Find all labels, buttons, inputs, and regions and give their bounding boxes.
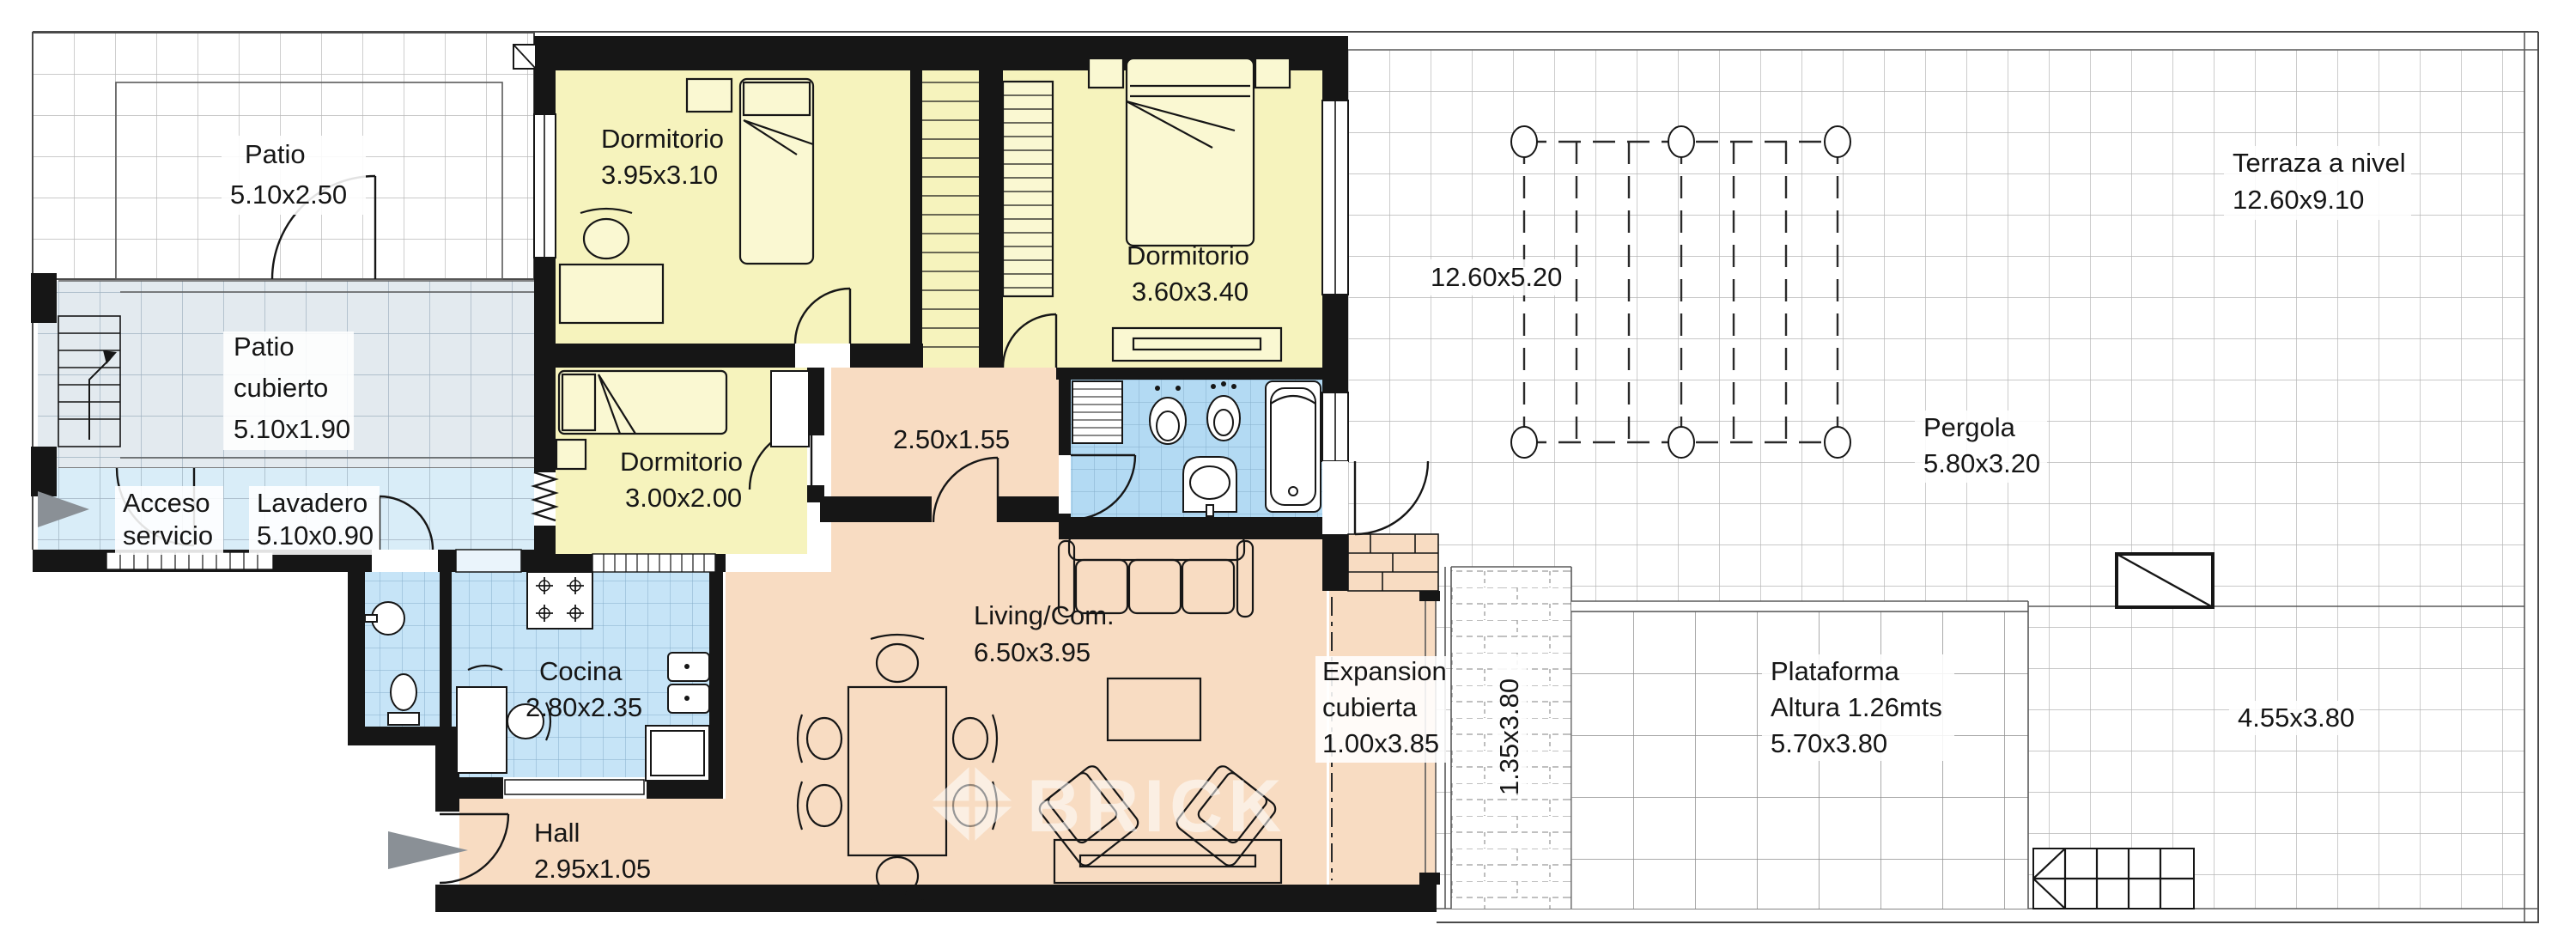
patio-label: Patio	[245, 139, 306, 169]
exterior-door-gap	[1322, 461, 1348, 534]
dormitorio1-dims: 3.95x3.10	[601, 160, 718, 190]
patio-cubierto-dims: 5.10x1.90	[234, 414, 350, 444]
wall-vent-hatch	[106, 552, 715, 572]
plataforma-label2: Altura 1.26mts	[1771, 692, 1942, 722]
zigzag-window-icon	[534, 472, 556, 520]
living-label: Living/Com.	[974, 600, 1115, 630]
terrace-stairs-icon	[2033, 849, 2194, 909]
dormitorio2-label: Dormitorio	[1127, 240, 1249, 271]
pasaje-dims: 1.35x3.80	[1494, 678, 1524, 795]
sink-icon	[1183, 457, 1236, 516]
terraza-dims: 12.60x9.10	[2233, 185, 2364, 215]
dormitorio1-label: Dormitorio	[601, 124, 724, 154]
hall-label: Hall	[534, 818, 580, 848]
pasillo-dims: 2.50x1.55	[893, 424, 1010, 454]
patio-cubierto-label: Patio	[234, 332, 295, 362]
lavadero-label: Lavadero	[257, 488, 368, 518]
patio-dims: 5.10x2.50	[230, 179, 347, 210]
column-icon	[513, 45, 536, 69]
acceso-label: Acceso	[123, 488, 210, 518]
window-icon	[1322, 100, 1348, 295]
pergola-label: Pergola	[1923, 412, 2016, 442]
patio-cubierto-label2: cubierto	[234, 373, 328, 403]
cocina-dims: 2.80x2.35	[526, 692, 642, 722]
watermark-text: BRICK	[1027, 765, 1286, 848]
lavadero-dims: 5.10x0.90	[257, 520, 374, 551]
expansion-dims: 1.00x3.85	[1322, 728, 1439, 758]
plataforma-dims: 5.70x3.80	[1771, 728, 1887, 758]
main-entry-arrow-icon	[388, 831, 468, 869]
living-dims: 6.50x3.95	[974, 637, 1091, 667]
floor-plan-canvas: Patio 5.10x2.50 Patio cubierto 5.10x1.90…	[0, 0, 2576, 949]
expansion-label2: cubierta	[1322, 692, 1418, 722]
window-icon	[534, 114, 556, 258]
wardrobe-icon	[1003, 82, 1053, 296]
floor-plan: Patio 5.10x2.50 Patio cubierto 5.10x1.90…	[0, 0, 2576, 949]
pergola-dims: 5.80x3.20	[1923, 448, 2040, 478]
hall-dims: 2.95x1.05	[534, 854, 651, 884]
terraza-pergola-dims: 12.60x5.20	[1431, 262, 1562, 292]
shower-icon	[1072, 381, 1122, 443]
fridge-icon	[646, 726, 709, 781]
plataforma-label: Plataforma	[1771, 656, 1900, 686]
acceso-label2: servicio	[123, 520, 213, 551]
stove-icon	[527, 572, 592, 629]
terraza-lateral-dims: 4.55x3.80	[2238, 703, 2354, 733]
bathtub-icon	[1266, 381, 1321, 512]
cocina-label: Cocina	[539, 656, 623, 686]
dormitorio3-label: Dormitorio	[620, 447, 743, 477]
threshold	[456, 550, 521, 572]
dormitorio2-dims: 3.60x3.40	[1132, 277, 1249, 307]
expansion-label: Expansion	[1322, 656, 1447, 686]
window-icon	[2117, 554, 2213, 607]
terraza-label: Terraza a nivel	[2233, 148, 2406, 178]
dormitorio3-dims: 3.00x2.00	[625, 483, 742, 513]
threshold	[505, 780, 644, 794]
window-icon	[1322, 392, 1348, 461]
